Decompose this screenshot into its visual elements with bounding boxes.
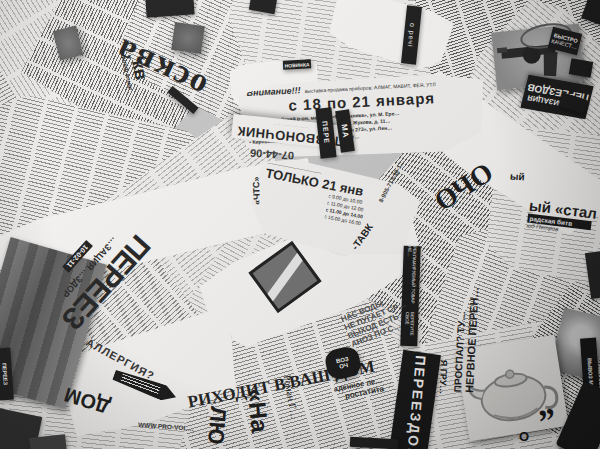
na-big-fragment: «На [243, 387, 273, 433]
novinka-chip: НОВИНКА [283, 59, 311, 69]
lyu-fragment: ЛЮ [204, 406, 230, 446]
chts-label: «ЧТС» [252, 176, 262, 205]
o-fragment: О [519, 430, 529, 444]
pereez-left-label: ПЕРЕЕЗ [1, 363, 9, 385]
dark-corner-fragment [29, 434, 67, 449]
ya-gru-fragment: Я ГРУ… [437, 360, 448, 395]
rechi-label: о речі [407, 22, 417, 47]
stal-fragment: ый [510, 172, 525, 183]
pere-vertical-label: ПЕРЕ [321, 121, 330, 145]
newspaper-collage-photo: осква кв філіф алмаг Внимание!!! выставк… [0, 0, 600, 449]
dark-edge-fragment [350, 437, 398, 449]
ma-vertical-label: МА [340, 123, 351, 139]
reklama-warning-strip: РЕКЛАМИРУЕМЫЙ ТОВАР НЕ… БЕРЕГИТЕ СВОЁ [400, 246, 420, 347]
reklama-warning-text: РЕКЛАМИРУЕМЫЙ ТОВАР НЕ… [405, 246, 417, 310]
och-label: ОЧ [339, 362, 349, 370]
phone-number: 07-44-06 [250, 146, 295, 161]
